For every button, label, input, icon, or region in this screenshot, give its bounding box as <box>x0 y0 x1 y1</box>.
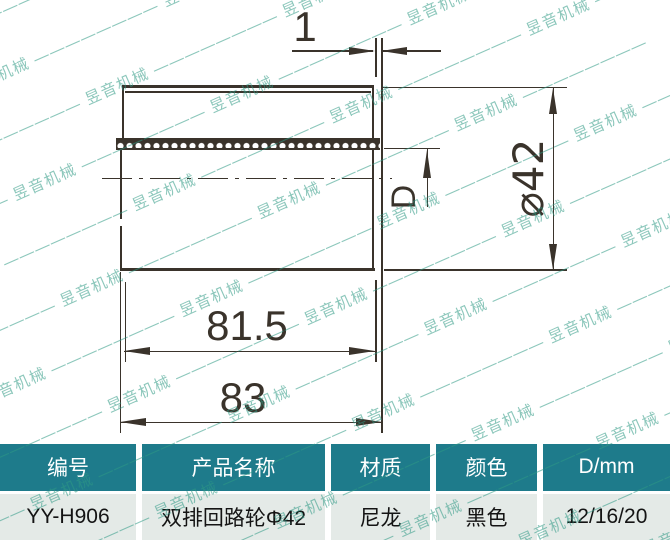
cap-inner-top-line <box>125 91 371 93</box>
dim-d-label: D <box>387 185 421 210</box>
knurl-band <box>116 138 380 150</box>
watermark-line: ———————— 昱音机械 ———————— 昱音机械 ———————— 昱音机… <box>0 0 670 43</box>
header-cell-color: 颜色 <box>436 444 537 491</box>
watermark-line: ———————— 昱音机械 ———————— 昱音机械 ———————— 昱音机… <box>0 0 670 361</box>
extension-line <box>383 87 567 89</box>
watermark-line: ———————— 昱音机械 ———————— 昱音机械 ———————— 昱音机… <box>0 0 670 467</box>
dim-1-label: 1 <box>288 6 322 48</box>
dim-arrow <box>356 418 382 426</box>
cap-left-edge <box>122 85 125 138</box>
table-data-row: YY-H906 双排回路轮Φ42 尼龙 黑色 12/16/20 <box>0 494 670 540</box>
center-line <box>102 178 392 180</box>
body-left-edge-upper <box>120 150 123 219</box>
extension-line <box>125 282 127 362</box>
cell-d-mm: 12/16/20 <box>543 494 670 540</box>
dim-arrow <box>349 347 375 355</box>
extension-line <box>384 269 567 271</box>
extension-line <box>381 38 383 433</box>
cap-top-edge <box>122 85 374 88</box>
watermark-line: ———————— 昱音机械 ———————— 昱音机械 ———————— 昱音机… <box>0 0 670 202</box>
dim-arrow <box>124 347 150 355</box>
cell-color: 黑色 <box>436 494 537 540</box>
spec-table: 编号 产品名称 材质 颜色 D/mm YY-H906 双排回路轮Φ42 尼龙 黑… <box>0 444 670 540</box>
extension-line <box>120 272 122 433</box>
cell-part-number: YY-H906 <box>0 494 136 540</box>
dim-arrow <box>381 47 407 55</box>
watermark-line: ———————— 昱音机械 ———————— 昱音机械 ———————— 昱音机… <box>0 0 670 149</box>
watermark-line: ———————— 昱音机械 ———————— 昱音机械 ———————— 昱音机… <box>0 0 670 308</box>
page: 1 ⌀42 D 81.5 83 编号 <box>0 0 670 540</box>
extension-line <box>375 38 377 77</box>
dim-arrow <box>120 418 146 426</box>
dim-81-5-label: 81.5 <box>197 305 297 347</box>
cell-product-name: 双排回路轮Φ42 <box>142 494 325 540</box>
table-header-row: 编号 产品名称 材质 颜色 D/mm <box>0 444 670 491</box>
header-cell-material: 材质 <box>331 444 430 491</box>
extension-line <box>375 280 377 362</box>
dim-arrow <box>549 88 557 114</box>
cap-right-edge <box>372 85 375 138</box>
dim-83-line <box>120 422 382 424</box>
cell-material: 尼龙 <box>331 494 430 540</box>
header-cell-d-mm: D/mm <box>543 444 670 491</box>
body-left-edge-lower <box>120 226 123 270</box>
header-cell-part-number: 编号 <box>0 444 136 491</box>
body-right-edge <box>372 150 375 271</box>
dim-dia42-label: ⌀42 <box>508 139 550 218</box>
watermark-line: ———————— 昱音机械 ———————— 昱音机械 ———————— 昱音机… <box>0 0 670 255</box>
watermark-line: ———————— 昱音机械 ———————— 昱音机械 ———————— 昱音机… <box>0 0 670 520</box>
dim-arrow <box>549 244 557 270</box>
dim-arrow <box>349 47 375 55</box>
watermark-line: ———————— 昱音机械 ———————— 昱音机械 ———————— 昱音机… <box>0 0 670 96</box>
body-bottom-edge <box>120 268 375 271</box>
extension-line <box>384 148 440 150</box>
dim-83-label: 83 <box>214 377 272 419</box>
dim-arrow <box>423 150 431 178</box>
dim-81-5-line <box>124 351 375 353</box>
header-cell-product-name: 产品名称 <box>142 444 325 491</box>
